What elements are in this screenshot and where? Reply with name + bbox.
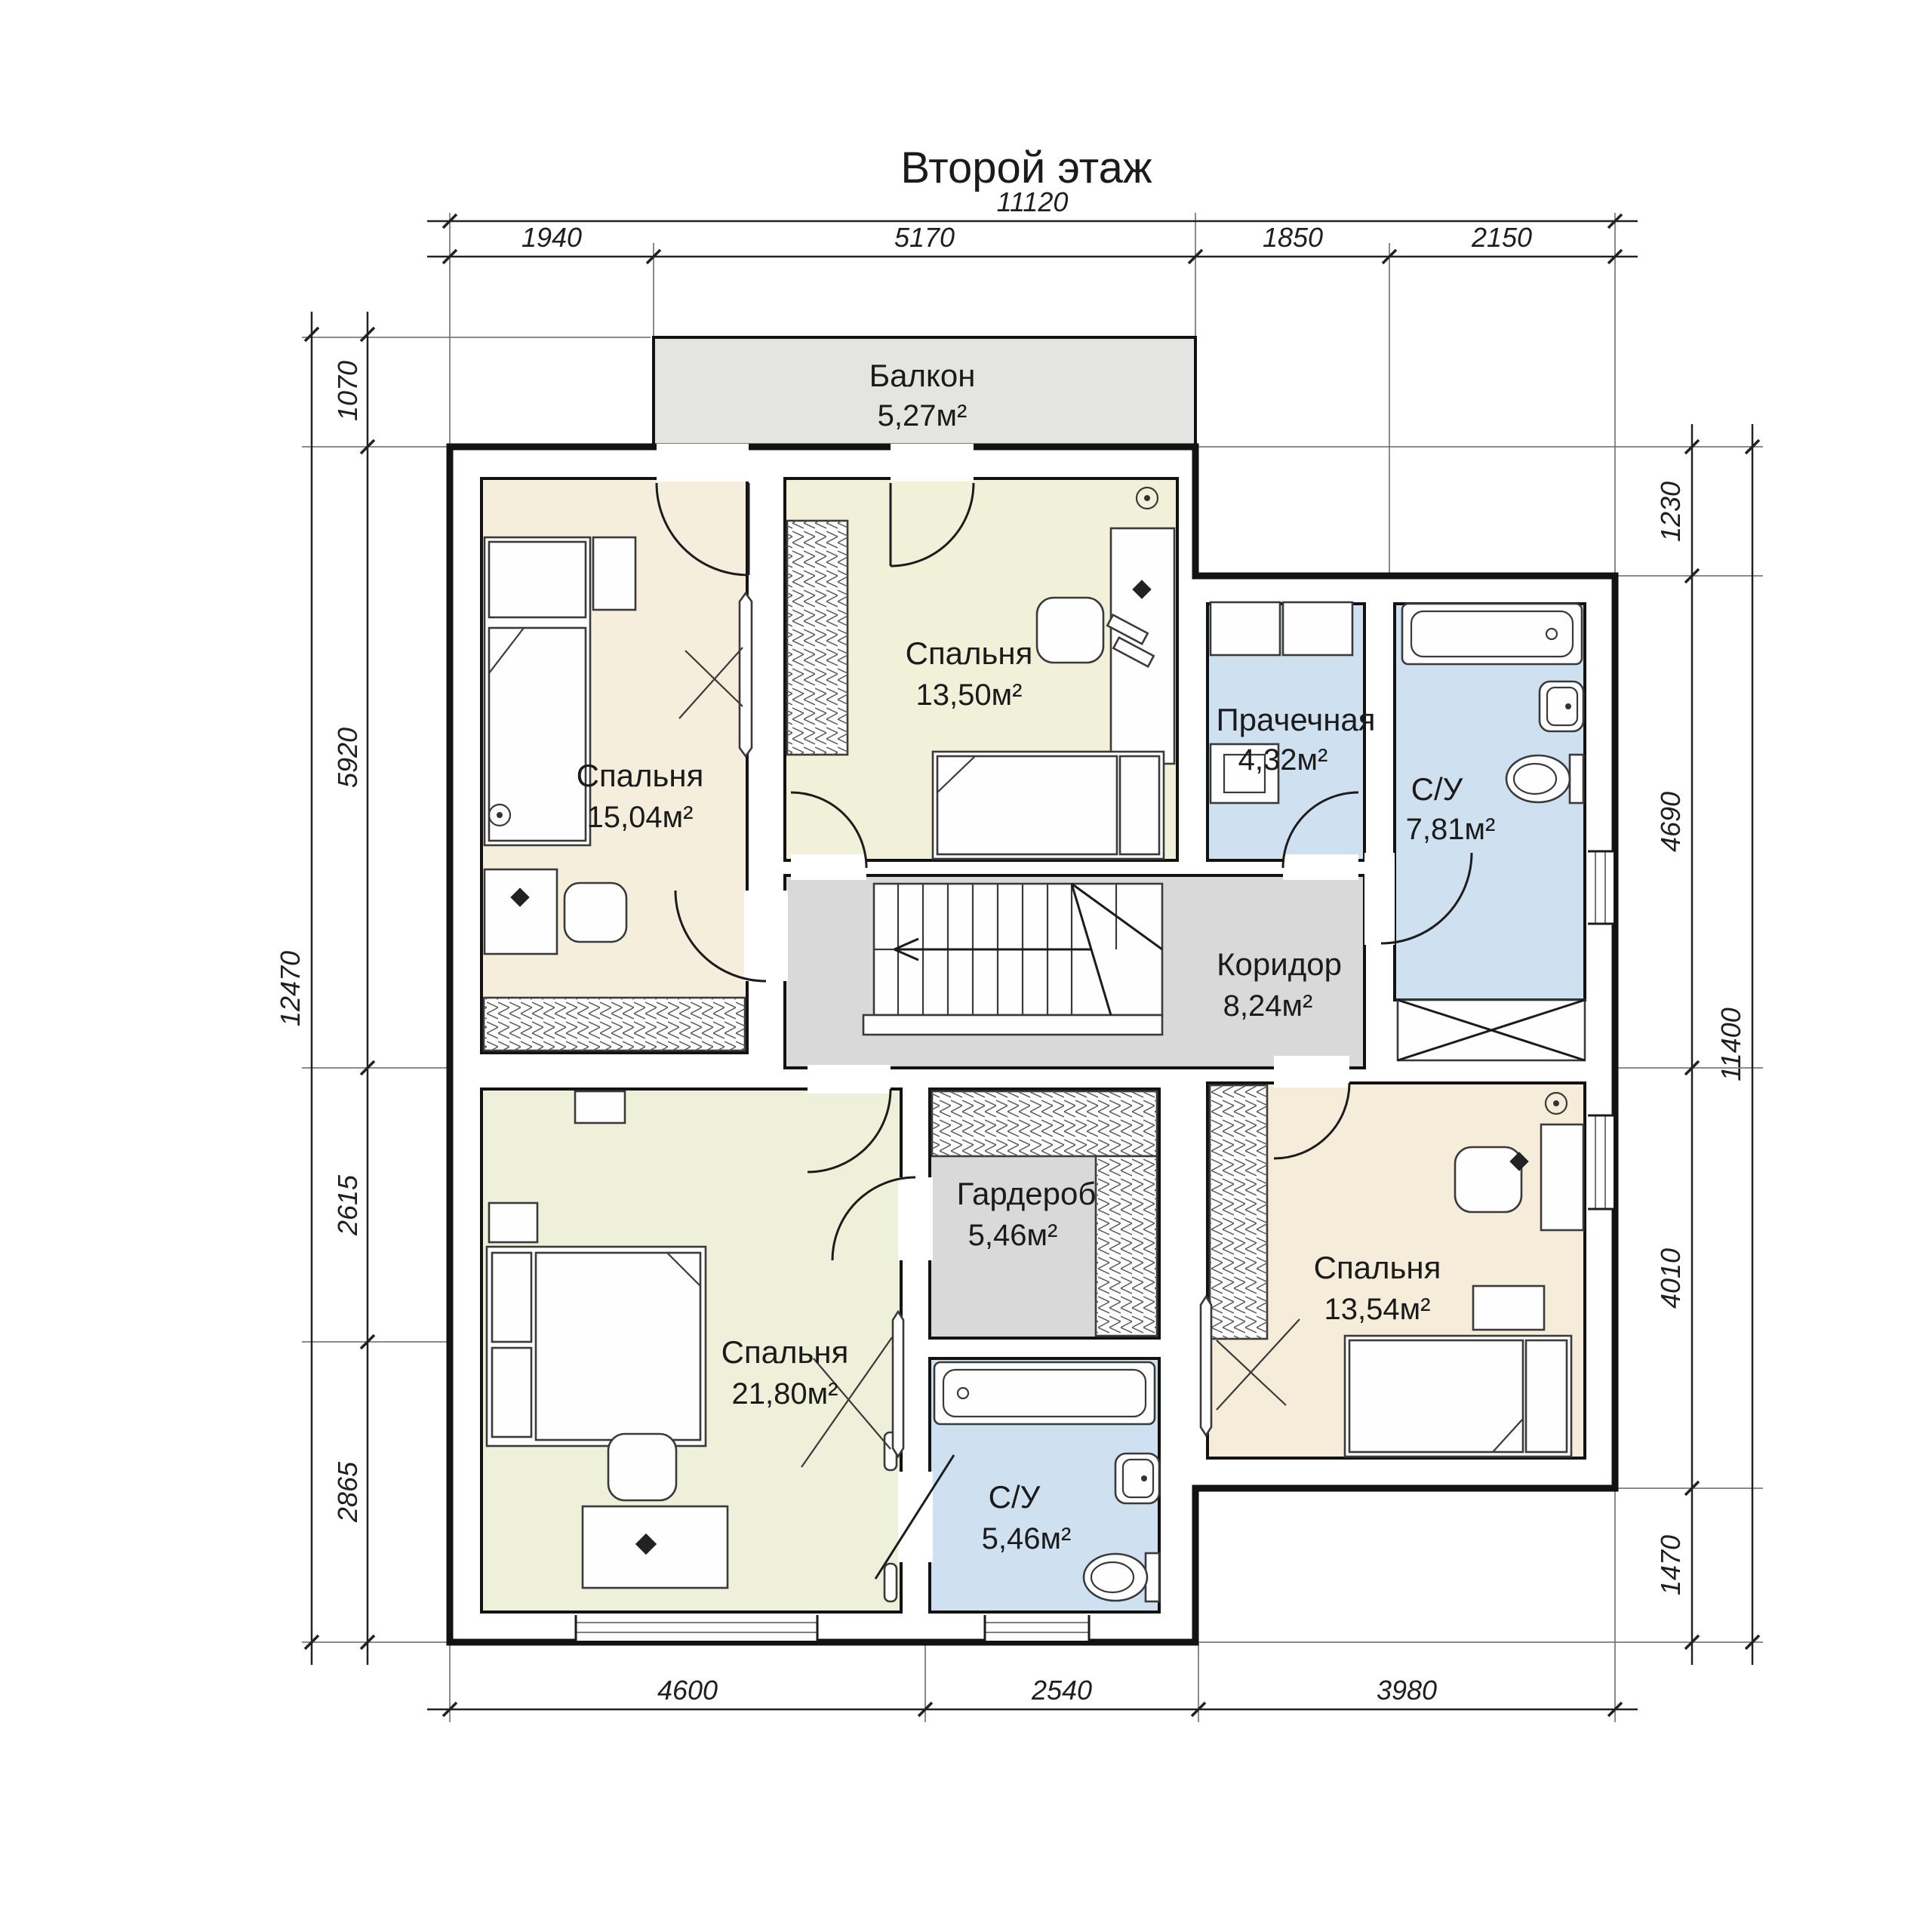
wall-mirror — [893, 1312, 903, 1457]
pillow — [1526, 1340, 1567, 1452]
sink — [1115, 1454, 1159, 1503]
blanket — [1349, 1340, 1523, 1452]
door-opening — [791, 854, 866, 880]
door-opening — [1364, 853, 1395, 945]
dim-left-3: 2615 — [332, 1174, 363, 1236]
flue-box — [575, 1091, 625, 1123]
staircase — [863, 884, 1162, 1035]
door-opening — [744, 891, 788, 981]
pillow — [1120, 756, 1159, 854]
door-opening — [898, 1177, 933, 1260]
bathtub — [1402, 604, 1582, 664]
bathtub — [934, 1362, 1155, 1424]
label-wardrobe-area: 5,46м² — [968, 1219, 1058, 1252]
toilet — [1506, 755, 1583, 803]
dim-bottom-2: 2540 — [1031, 1675, 1092, 1706]
floor-plan-page: Второй этаж 11120 1940 5170 — [0, 0, 1932, 1932]
dim-bottom-1: 4600 — [657, 1675, 718, 1706]
desk-chair — [565, 883, 626, 942]
pillow — [489, 542, 586, 617]
door-opening — [1283, 854, 1358, 880]
label-balcony-name: Балкон — [869, 358, 976, 393]
label-bedroom-top-middle-area: 13,50м² — [916, 678, 1023, 712]
blanket — [937, 756, 1117, 854]
dim-top-total: 11120 — [997, 186, 1069, 217]
desk — [583, 1506, 728, 1588]
label-balcony-area: 5,27м² — [878, 399, 968, 432]
floor-plan-drawing: Второй этаж 11120 1940 5170 — [0, 0, 1932, 1932]
dim-right-3: 4010 — [1655, 1248, 1686, 1309]
label-bedroom-top-middle-name: Спальня — [906, 635, 1033, 671]
label-bathroom-bottom-name: С/У — [989, 1479, 1041, 1515]
nightstand — [489, 1203, 537, 1242]
blanket — [489, 628, 586, 841]
pillow — [492, 1348, 531, 1437]
dim-top-1: 1940 — [521, 222, 582, 253]
label-corridor-name: Коридор — [1217, 946, 1342, 982]
window-right-bathroom-top — [1588, 851, 1614, 924]
dim-right-2: 4690 — [1655, 792, 1686, 852]
dimension-chain-right: 1230 4690 4010 1470 11400 — [1655, 424, 1759, 1665]
window-right-bedroom-bottom-right — [1588, 1115, 1614, 1209]
door-opening — [1274, 1056, 1349, 1088]
label-bathroom-bottom-area: 5,46м² — [982, 1522, 1072, 1555]
desk-chair — [1455, 1147, 1521, 1212]
dim-right-4: 1470 — [1655, 1535, 1686, 1595]
washing-machine — [1283, 602, 1352, 655]
label-wardrobe-name: Гардероб — [957, 1176, 1097, 1211]
label-bathroom-top-name: С/У — [1411, 771, 1463, 807]
shaft-crossed-box — [1398, 1000, 1585, 1060]
label-bathroom-top-area: 7,81м² — [1406, 813, 1496, 846]
dim-top-4: 2150 — [1471, 222, 1532, 253]
nightstand — [593, 537, 635, 610]
dim-left-1: 1070 — [332, 361, 363, 421]
washing-machine — [1211, 602, 1280, 655]
label-bedroom-bottom-left-area: 21,80м² — [732, 1377, 838, 1411]
desk — [1541, 1124, 1583, 1230]
label-bedroom-top-left-area: 15,04м² — [587, 801, 694, 834]
label-bedroom-top-left-name: Спальня — [577, 758, 704, 793]
desk — [485, 869, 557, 954]
desk-chair — [1037, 598, 1103, 663]
toilet — [1084, 1553, 1159, 1601]
label-bedroom-bottom-right-name: Спальня — [1314, 1250, 1441, 1285]
door-opening — [808, 1065, 891, 1094]
dimension-chain-bottom: 4600 2540 3980 — [427, 1675, 1638, 1716]
balcony-door-opening-right — [891, 444, 974, 481]
window-bottom-bedroom — [576, 1615, 817, 1641]
dimension-chain-top: 11120 1940 5170 1850 2150 — [427, 186, 1638, 263]
dim-top-3: 1850 — [1263, 222, 1323, 253]
desk-chair — [608, 1434, 676, 1500]
dimension-chain-left: 12470 1070 5920 2615 2865 — [275, 312, 374, 1665]
window-bottom-bathroom — [985, 1615, 1089, 1641]
wall-mirror — [740, 593, 752, 756]
wall-mirror — [1201, 1297, 1211, 1435]
dim-left-2: 5920 — [332, 728, 363, 788]
label-laundry-name: Прачечная — [1216, 702, 1375, 737]
label-bedroom-bottom-right-area: 13,54м² — [1324, 1293, 1431, 1326]
sink — [1540, 681, 1583, 731]
dim-bottom-3: 3980 — [1377, 1675, 1437, 1706]
blanket — [536, 1253, 700, 1440]
dim-right-1: 1230 — [1655, 481, 1686, 542]
label-bedroom-bottom-left-name: Спальня — [721, 1334, 849, 1370]
label-corridor-area: 8,24м² — [1223, 989, 1313, 1023]
dim-left-total: 12470 — [275, 951, 306, 1026]
label-laundry-area: 4,32м² — [1238, 743, 1328, 777]
dim-right-total: 11400 — [1715, 1008, 1746, 1081]
balcony-door-opening-left — [657, 444, 749, 481]
dim-top-2: 5170 — [894, 222, 955, 253]
page-title: Второй этаж — [900, 143, 1152, 192]
dim-left-4: 2865 — [332, 1461, 363, 1523]
nightstand — [1473, 1286, 1544, 1330]
pillow — [492, 1253, 531, 1342]
